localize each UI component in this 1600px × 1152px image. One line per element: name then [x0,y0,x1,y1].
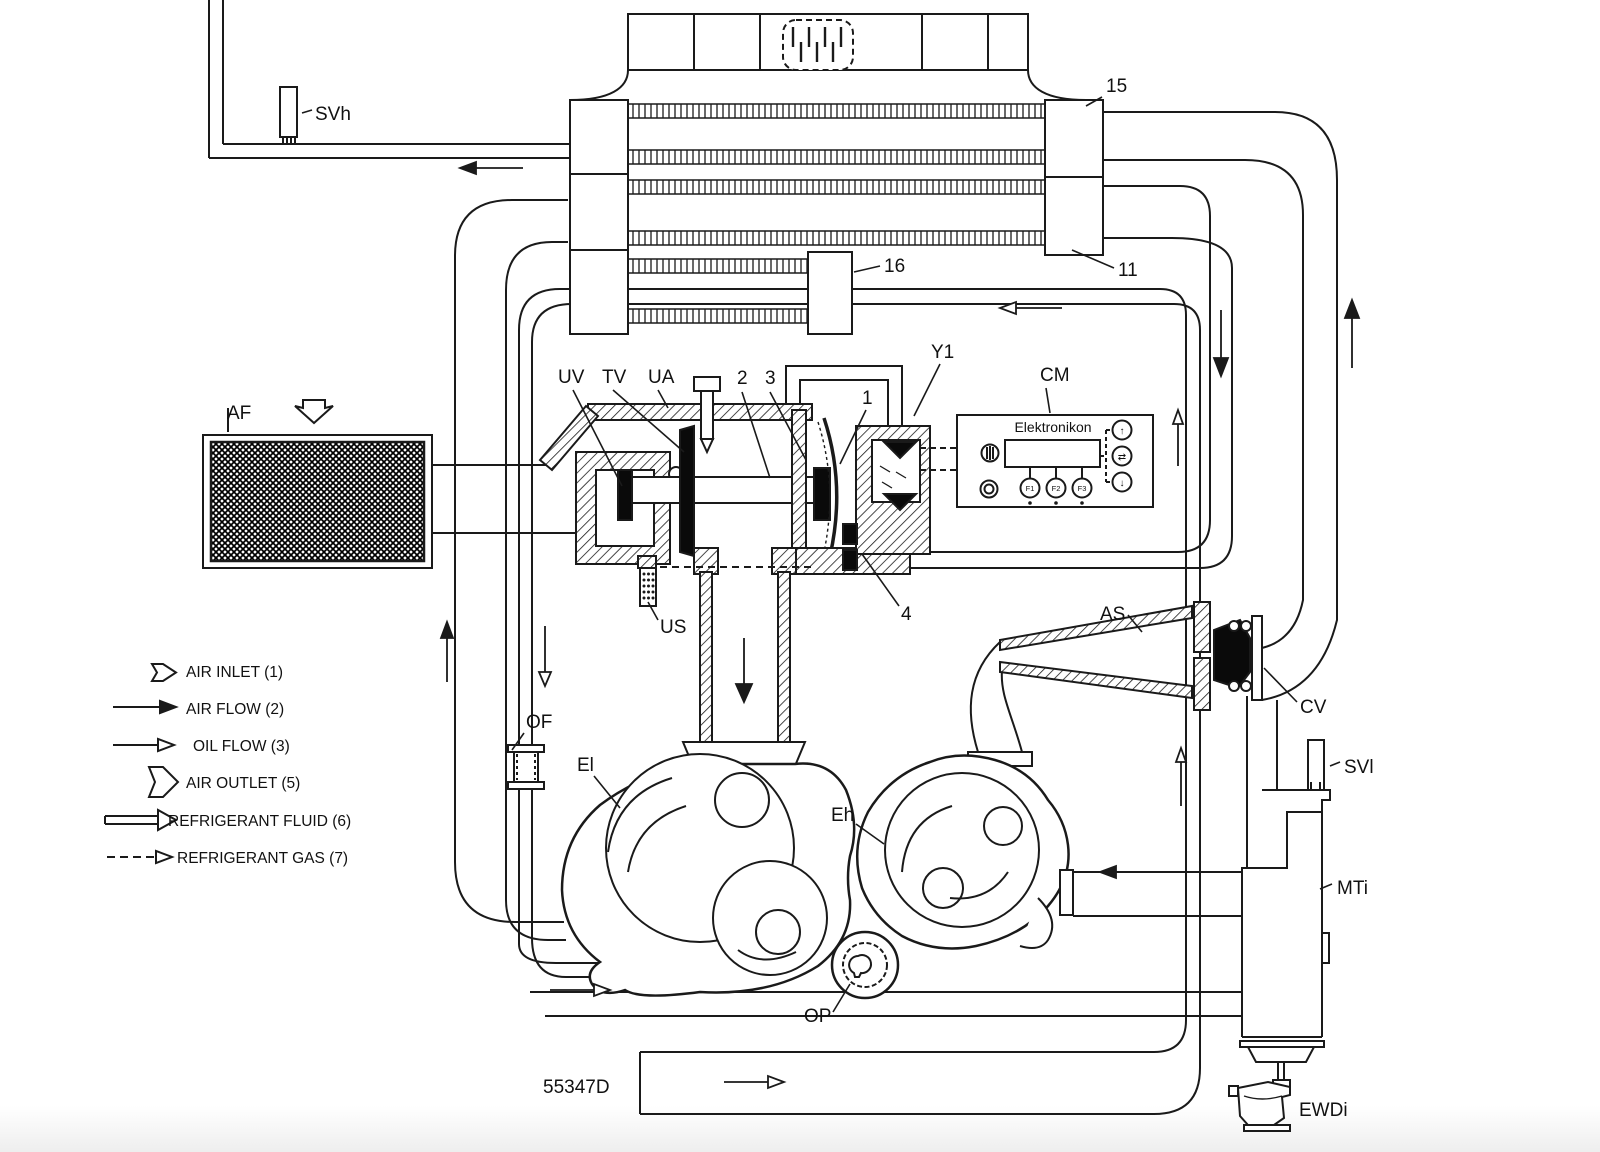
label-2: 2 [737,368,748,389]
air-outlet-icon [149,767,178,797]
label-16: 16 [884,256,905,277]
oil-flow-arrow [539,626,551,686]
compressor-element-eh [857,752,1073,948]
refrigerant-gas-icon [107,851,172,863]
legend [105,664,178,863]
air-flow-arrow [1214,310,1228,376]
drawing-number: 55347D [543,1077,610,1098]
label-af: AF [227,403,251,424]
schematic-page: SVh151116UVTVUA231Y1CM4USAFASCVSVlMTiOFE… [0,0,1600,1152]
air-inlet-arrow-icon [295,400,333,423]
air-flow-arrow [1173,410,1183,466]
air-inlet-icon [152,664,176,681]
safety-valve-housing-svh [280,87,297,144]
label-cv: CV [1300,697,1327,718]
label-15: 15 [1106,76,1127,97]
legend-refrigerant-fluid-label: REFRIGERANT FLUID (6) [168,813,351,830]
label-svl: SVl [1344,757,1374,778]
refrigerant-fluid-icon [105,810,176,830]
oil-flow-arrow [550,984,610,996]
label-4: 4 [901,604,912,625]
cooler-assembly [570,14,1103,334]
oil-flow-icon [113,739,174,751]
ind-up-glyph: ↑ [1120,426,1125,437]
legend-oil-flow-label: OIL FLOW (3) [193,738,290,755]
throttle-valve-tv [680,426,694,556]
label-tv: TV [602,367,627,388]
oil-pump [832,932,898,998]
compressor-element-el [562,572,854,996]
legend-air-inlet-label: AIR INLET (1) [186,664,283,681]
legend-text-layer: AIR INLET (1)AIR FLOW (2)OIL FLOW (3)AIR… [168,664,351,867]
label-ua: UA [648,367,675,388]
water-drain-ewdi [1229,1082,1290,1131]
moisture-trap [1229,740,1330,1131]
air-flow-arrow [1100,866,1162,878]
label-op: OP [804,1006,831,1027]
display [1005,440,1100,467]
label-11: 11 [1118,260,1138,281]
legend-refrigerant-gas-label: REFRIGERANT GAS (7) [177,850,348,867]
oil-filter [508,745,544,789]
legend-air-outlet-label: AIR OUTLET (5) [186,775,300,792]
label-1: 1 [862,388,873,409]
label-uv: UV [558,367,585,388]
seal-4 [843,524,857,544]
label-3: 3 [765,368,776,389]
label-el: El [577,755,594,776]
label-ewdi: EWDi [1299,1100,1348,1121]
label-cm: CM [1040,365,1070,386]
label-eh: Eh [831,805,854,826]
air-flow-icon [113,701,176,713]
label-y1: Y1 [931,342,954,363]
air-flow-arrow [736,638,752,702]
fan-housing [628,14,1028,70]
solenoid-valve-y1 [856,426,930,554]
ind-down-glyph: ↓ [1120,478,1125,489]
contrast-knob-icon [982,445,999,462]
btn-f1-label: F1 [1026,484,1035,493]
label-svh: SVh [315,104,351,125]
compressor-flow-diagram: SVh151116UVTVUA231Y1CM4USAFASCVSVlMTiOFE… [0,0,1600,1152]
fan-grille-icon [783,20,853,70]
btn-f2-label: F2 [1052,484,1061,493]
air-filter [203,400,432,568]
unloader-valve-uv [618,470,632,520]
oil-scavenge-us [638,556,656,606]
air-flow-arrow [1176,748,1186,806]
label-of: OF [526,712,552,733]
label-as: AS [1100,604,1125,625]
led-icon [981,481,998,498]
btn-f3-label: F3 [1078,484,1087,493]
check-valve [1214,616,1262,700]
air-flow-arrow [460,162,523,174]
panel-title: Elektronikon [1014,419,1091,435]
label-us: US [660,617,686,638]
air-flow-arrow [1345,300,1359,368]
oil-flow-arrow [724,1076,784,1088]
legend-air-flow-label: AIR FLOW (2) [186,701,284,718]
air-flow-arrow [441,622,453,682]
ind-auto-glyph: ⇄ [1118,452,1126,463]
safety-valve-svl [1308,740,1324,790]
label-mti: MTi [1337,878,1368,899]
cooler-block-16 [808,252,852,334]
